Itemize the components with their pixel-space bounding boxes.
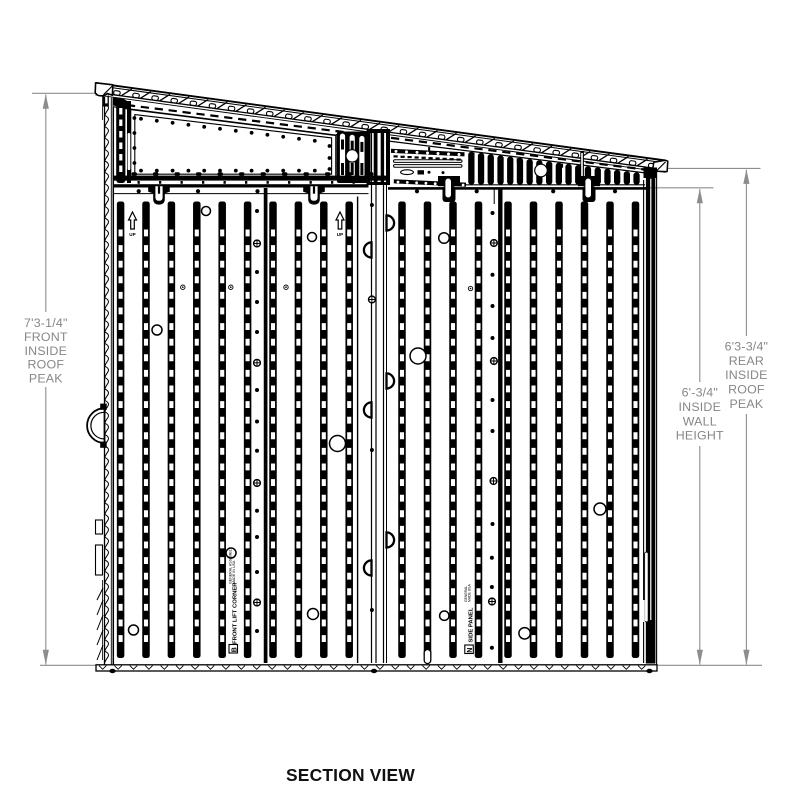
svg-text:UP: UP	[129, 232, 135, 237]
svg-text:FRONT: FRONT	[24, 330, 68, 344]
svg-text:FRONT LIFT CORNER: FRONT LIFT CORNER	[233, 582, 239, 644]
svg-text:PEAK: PEAK	[729, 397, 763, 411]
svg-text:N: N	[467, 648, 474, 653]
svg-text:7'3-1/4": 7'3-1/4"	[24, 316, 68, 330]
svg-text:ROOF: ROOF	[728, 383, 765, 397]
svg-text:6'3-3/4": 6'3-3/4"	[725, 339, 769, 353]
svg-text:ROOF: ROOF	[28, 358, 65, 372]
svg-text:INSIDE: INSIDE	[25, 344, 68, 358]
svg-text:HEIGHT: HEIGHT	[676, 429, 724, 443]
svg-text:INSIDE: INSIDE	[679, 400, 722, 414]
svg-text:PEAK: PEAK	[29, 371, 63, 385]
svg-text:6'-3/4": 6'-3/4"	[682, 386, 718, 400]
svg-text:SECTION VIEW: SECTION VIEW	[286, 765, 415, 785]
svg-text:B: B	[231, 647, 238, 652]
svg-text:MADE IN USA: MADE IN USA	[232, 560, 236, 584]
svg-text:INSIDE: INSIDE	[725, 368, 768, 382]
svg-text:UP: UP	[337, 232, 343, 237]
svg-text:WALL: WALL	[683, 414, 717, 428]
svg-text:SIDE PANEL: SIDE PANEL	[468, 607, 474, 642]
svg-text:REAR: REAR	[729, 354, 764, 368]
svg-text:MADE USA: MADE USA	[468, 584, 472, 602]
